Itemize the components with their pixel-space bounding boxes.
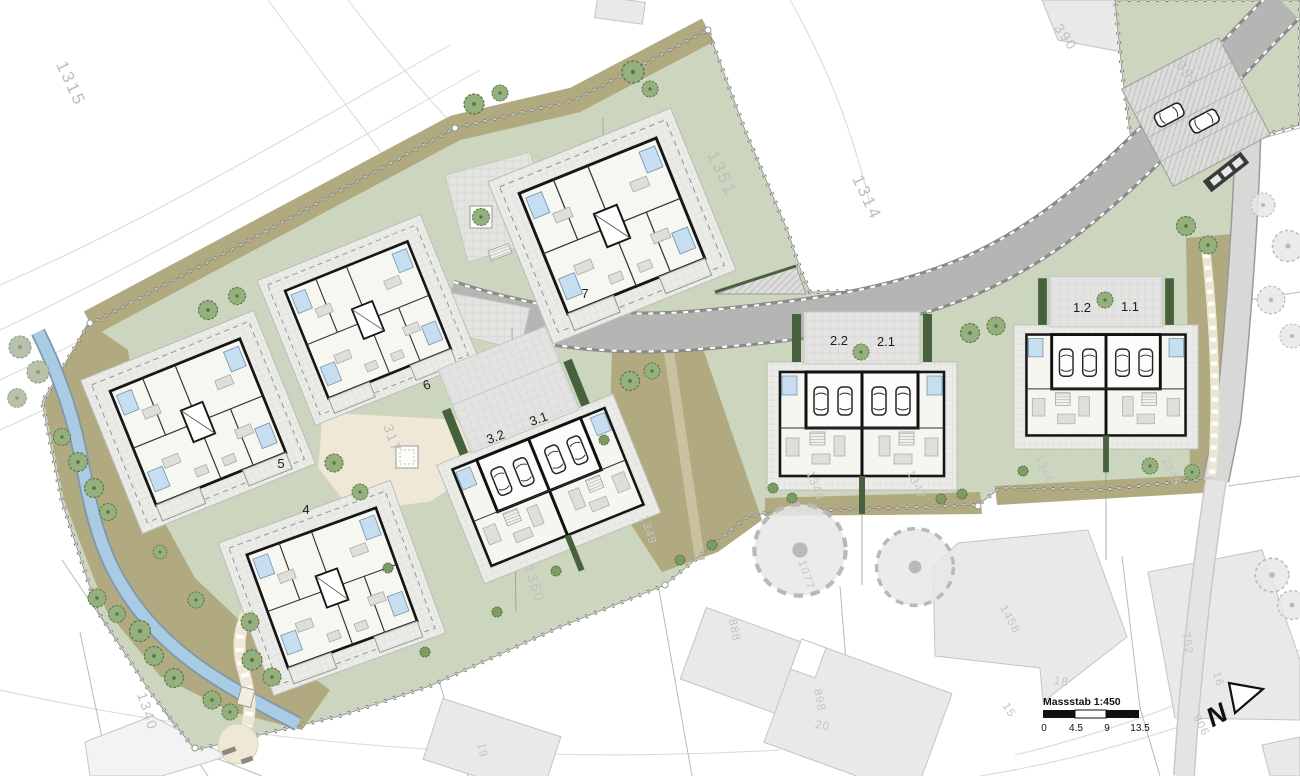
existing-tree-icon bbox=[1257, 286, 1285, 314]
scale-bar-segment bbox=[1106, 710, 1139, 718]
unit-label-2-2: 2.2 bbox=[830, 333, 848, 348]
unit-label-5: 5 bbox=[277, 456, 284, 471]
building-2 bbox=[767, 312, 957, 514]
existing-tree-icon bbox=[1272, 230, 1300, 261]
scale-tick-13-5: 13.5 bbox=[1130, 723, 1150, 734]
site-plan: 1315 1351 1314 390 391 317 1340 1350 134… bbox=[0, 0, 1300, 776]
parcel-label-18: 18 bbox=[1053, 675, 1070, 689]
unit-label-4: 4 bbox=[302, 502, 309, 517]
existing-tree-icon bbox=[877, 529, 954, 606]
unit-label-2-1: 2.1 bbox=[877, 334, 895, 349]
scale-bar-segment bbox=[1043, 710, 1075, 718]
existing-tree-icon bbox=[754, 504, 845, 595]
existing-tree-icon bbox=[1251, 193, 1275, 217]
scale-tick-9: 9 bbox=[1104, 723, 1110, 734]
existing-tree-icon bbox=[1255, 558, 1289, 592]
existing-tree-icon bbox=[1278, 591, 1300, 620]
existing-tree-icon bbox=[1280, 324, 1300, 348]
scale-tick-4-5: 4.5 bbox=[1069, 723, 1083, 734]
unit-label-7: 7 bbox=[581, 286, 588, 301]
scale-bar-segment bbox=[1075, 710, 1106, 718]
scale-bar-title: Massstab 1:450 bbox=[1043, 696, 1121, 708]
site-plan-canvas: 1315 1351 1314 390 391 317 1340 1350 134… bbox=[0, 0, 1300, 776]
unit-label-1-2: 1.2 bbox=[1073, 300, 1091, 315]
unit-label-1-1: 1.1 bbox=[1121, 299, 1139, 314]
scale-tick-0: 0 bbox=[1041, 723, 1047, 734]
